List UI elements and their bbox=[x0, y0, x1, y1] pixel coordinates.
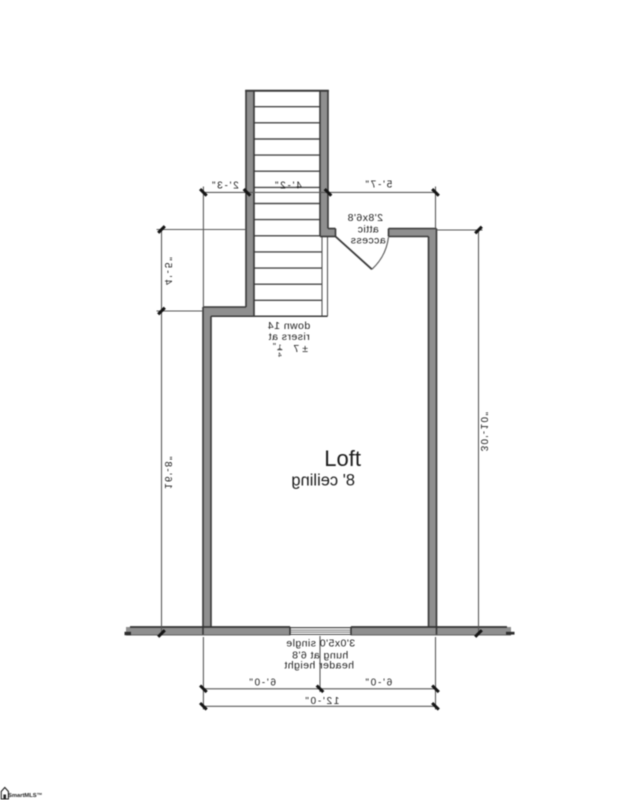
svg-text:± 7: ± 7 bbox=[293, 343, 308, 355]
svg-text:5'-7": 5'-7" bbox=[364, 180, 392, 191]
svg-text:6'-0": 6'-0" bbox=[248, 677, 276, 688]
svg-text:12'-0": 12'-0" bbox=[304, 696, 340, 707]
svg-text:16'-8": 16'-8" bbox=[162, 455, 173, 489]
svg-text:4'-2": 4'-2" bbox=[273, 181, 301, 192]
svg-text:4: 4 bbox=[278, 352, 282, 359]
svg-text:SmartMLS™: SmartMLS™ bbox=[8, 793, 42, 799]
svg-text:3'0x5'0 single: 3'0x5'0 single bbox=[286, 638, 355, 650]
svg-text:header height: header height bbox=[284, 660, 354, 672]
svg-text:30'-10": 30'-10" bbox=[478, 411, 489, 452]
svg-text:4'-5": 4'-5" bbox=[162, 255, 173, 285]
svg-text:access: access bbox=[350, 234, 385, 246]
svg-text:Loft: Loft bbox=[324, 446, 361, 471]
svg-text:6'-0": 6'-0" bbox=[364, 677, 392, 688]
svg-text:2'-3": 2'-3" bbox=[210, 181, 238, 192]
svg-text:": " bbox=[273, 341, 276, 351]
svg-text:2'8x6'8: 2'8x6'8 bbox=[347, 212, 383, 224]
svg-text:8' ceiling: 8' ceiling bbox=[291, 472, 355, 490]
